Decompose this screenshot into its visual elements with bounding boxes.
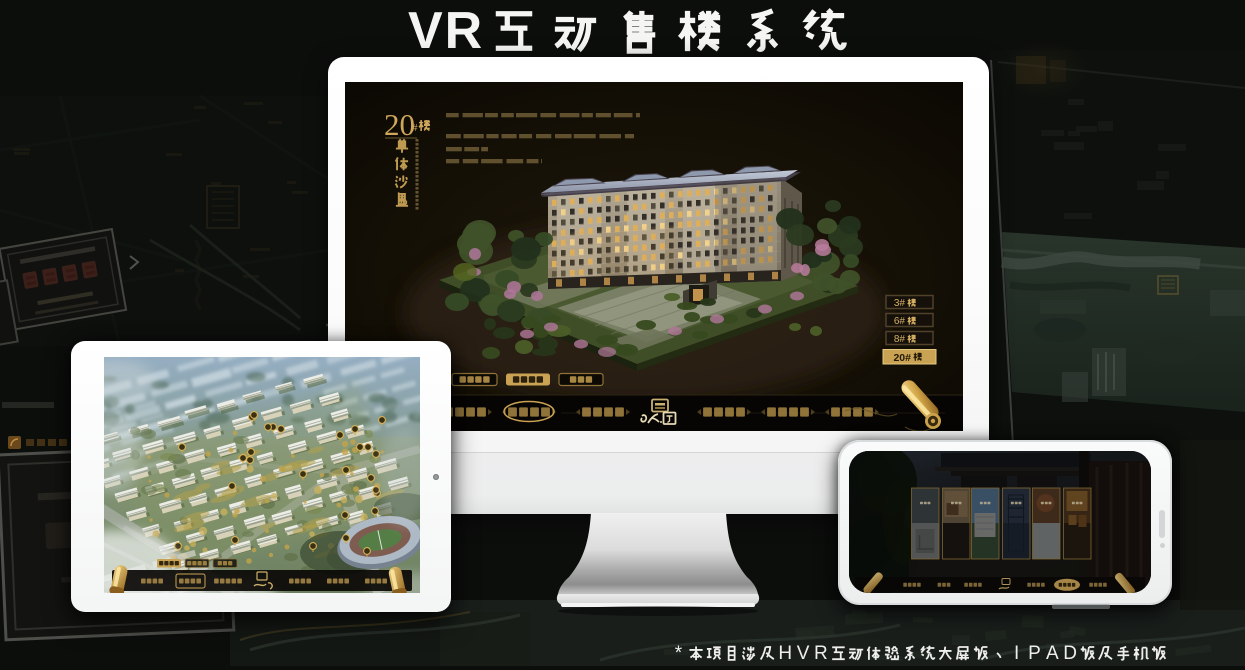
svg-text:6#: 6# [894,316,906,327]
svg-text:*: * [675,643,683,664]
svg-text:V: V [797,643,810,664]
svg-text:A: A [1046,643,1059,664]
svg-text:I: I [1014,643,1019,664]
svg-text:D: D [1063,643,1077,664]
svg-text:20: 20 [384,107,415,142]
svg-text:VR: VR [408,2,484,60]
svg-text:H: H [778,643,792,664]
svg-text:3#: 3# [894,298,906,309]
svg-text:8#: 8# [894,334,906,345]
svg-text:#: # [412,123,418,134]
svg-text:R: R [814,643,828,664]
svg-text:20#: 20# [893,352,911,364]
svg-text:P: P [1028,643,1041,664]
